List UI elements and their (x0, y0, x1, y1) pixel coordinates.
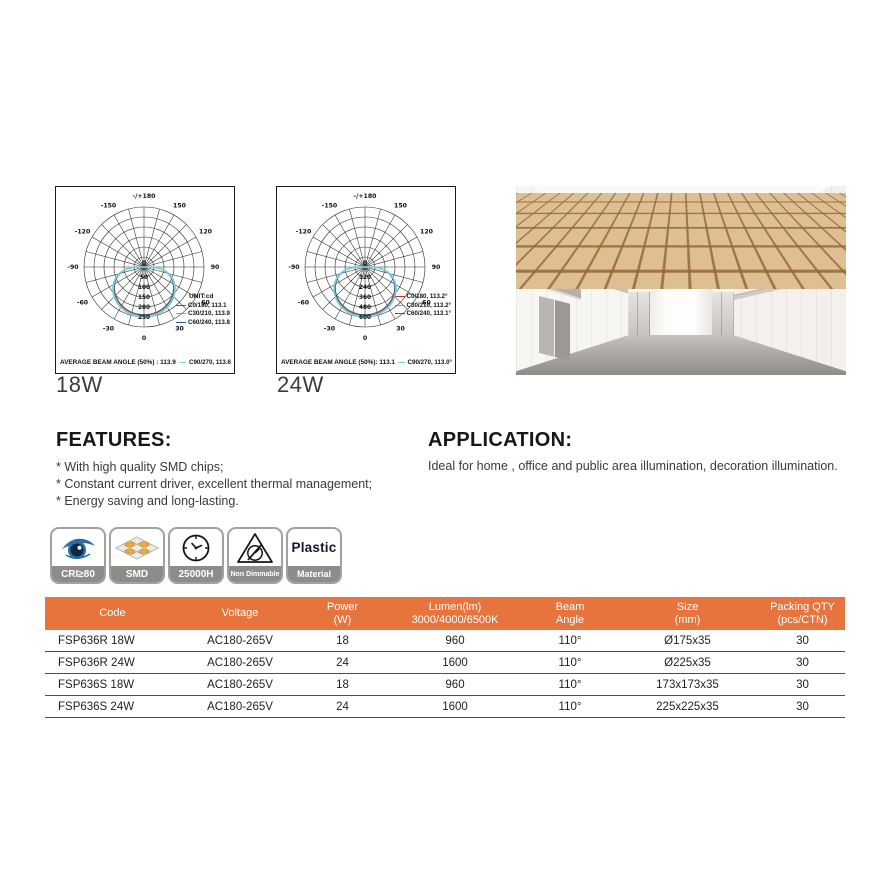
chart-legend: UNIT:cdC0/180, 113.1C30/210, 113.9C60/24… (176, 293, 230, 326)
table-cell: AC180-265V (180, 630, 300, 652)
table-cell: 30 (760, 674, 845, 696)
radial-tick-label: 240 (359, 285, 371, 291)
angle-tick-label: -90 (67, 264, 79, 271)
table-cell: 30 (760, 652, 845, 674)
angle-tick-label: 150 (394, 203, 408, 210)
radial-tick-label: 50 (140, 275, 148, 281)
table-cell: FSP636R 24W (45, 652, 180, 674)
table-cell: AC180-265V (180, 674, 300, 696)
center-label: 0 (363, 261, 367, 267)
average-beam-angle-row: AVERAGE BEAM ANGLE (50%) : 113.9C90/270,… (60, 359, 231, 366)
photo-center-column (650, 246, 712, 335)
radial-tick-label: 150 (138, 295, 150, 301)
badge-cri-label: CRI≥80 (52, 566, 104, 582)
angle-tick-label: -90 (288, 264, 300, 271)
table-cell: 173x173x35 (615, 674, 760, 696)
non-dimmable-icon (229, 530, 281, 565)
average-beam-angle-text: AVERAGE BEAM ANGLE (50%): 113.1 (281, 359, 395, 366)
angle-tick-label: -150 (101, 203, 117, 210)
photometric-chart-24w: -/+180-150150-120120-9090-6060-303001202… (276, 186, 456, 374)
radial-tick-label: 600 (359, 315, 371, 321)
table-cell: 110° (525, 696, 615, 718)
table-cell: FSP636R 18W (45, 630, 180, 652)
eye-icon (52, 530, 104, 565)
clock-icon (170, 530, 222, 565)
radial-tick-label: 480 (359, 305, 371, 311)
features-list: * With high quality SMD chips; * Constan… (56, 459, 372, 510)
chart-legend: C0/180, 113.2°C30/210, 113.2°C60/240, 11… (395, 293, 451, 317)
badge-material: Plastic Material (286, 527, 342, 584)
legend-label: C60/240, 113.8 (188, 319, 230, 326)
table-cell: 30 (760, 696, 845, 718)
col-header-size: Size(mm) (615, 597, 760, 630)
legend-swatch (176, 305, 186, 306)
table-cell: Ø225x35 (615, 652, 760, 674)
angle-tick-label: 30 (175, 325, 184, 332)
legend-entry: C0/180, 113.2° (395, 293, 451, 300)
badge-cri: CRI≥80 (50, 527, 106, 584)
features-title: FEATURES: (56, 429, 172, 452)
legend-label: C90/270, 113.6 (189, 359, 231, 366)
table-cell: 110° (525, 652, 615, 674)
badge-row: CRI≥80 SMD (50, 527, 342, 584)
angle-tick-label: 90 (432, 264, 441, 271)
table-cell: AC180-265V (180, 696, 300, 718)
legend-unit-label: UNIT:cd (189, 293, 230, 300)
table-cell: 1600 (385, 652, 525, 674)
table-cell: 225x225x35 (615, 696, 760, 718)
badge-lifetime-label: 25000H (170, 566, 222, 582)
angle-tick-label: 120 (199, 229, 213, 236)
application-title: APPLICATION: (428, 429, 572, 452)
table-row: FSP636R 18W AC180-265V 18 960 110° Ø175x… (45, 630, 845, 652)
legend-swatch (395, 313, 405, 314)
table-cell: 18 (300, 630, 385, 652)
table-cell: 24 (300, 696, 385, 718)
col-header-packing: Packing QTY(pcs/CTN) (760, 597, 845, 630)
badge-smd-label: SMD (111, 566, 163, 582)
photo-left-balcony (531, 205, 581, 300)
legend-label: C60/240, 113.1° (407, 310, 451, 317)
legend-label: C0/180, 113.2° (407, 293, 448, 300)
polar-diagram: -/+180-150150-120120-9090-6060-303005010… (56, 187, 232, 371)
table-row: FSP636R 24W AC180-265V 24 1600 110° Ø225… (45, 652, 845, 674)
polar-diagram: -/+180-150150-120120-9090-6060-303001202… (277, 187, 453, 371)
table-cell: FSP636S 24W (45, 696, 180, 718)
legend-swatch (398, 362, 405, 363)
angle-tick-label: -/+180 (133, 193, 157, 200)
legend-entry: C60/240, 113.1° (395, 310, 451, 317)
table-cell: 960 (385, 630, 525, 652)
legend-entry: C0/180, 113.1 (176, 302, 230, 309)
col-header-lumen: Lumen(lm)3000/4000/6500K (385, 597, 525, 630)
feature-item: * With high quality SMD chips; (56, 459, 372, 476)
chart-label-24w: 24W (277, 372, 324, 398)
angle-tick-label: 30 (396, 325, 405, 332)
datasheet-page: -/+180-150150-120120-9090-6060-303005010… (0, 0, 886, 886)
angle-tick-label: -30 (324, 325, 336, 332)
table-row: FSP636S 18W AC180-265V 18 960 110° 173x1… (45, 674, 845, 696)
radial-tick-label: 250 (138, 315, 150, 321)
average-beam-angle-text: AVERAGE BEAM ANGLE (50%) : 113.9 (60, 359, 176, 366)
photo-top-strip (516, 186, 846, 194)
smd-chip-icon (111, 530, 163, 565)
badge-lifetime: 25000H (168, 527, 224, 584)
feature-item: * Energy saving and long-lasting. (56, 493, 372, 510)
table-header-row: Code Voltage Power(W) Lumen(lm)3000/4000… (45, 597, 845, 630)
col-header-voltage: Voltage (180, 597, 300, 630)
badge-non-dimmable: Non Dimmable (227, 527, 283, 584)
angle-tick-label: -60 (298, 300, 310, 307)
badge-smd: SMD (109, 527, 165, 584)
table-row: FSP636S 24W AC180-265V 24 1600 110° 225x… (45, 696, 845, 718)
plastic-text: Plastic (292, 540, 337, 555)
angle-tick-label: 0 (142, 335, 147, 342)
table-cell: 1600 (385, 696, 525, 718)
photo-elevator-doors (539, 296, 570, 361)
table-cell: 960 (385, 674, 525, 696)
legend-label: C30/210, 113.9 (188, 310, 230, 317)
legend-entry: C30/210, 113.9 (176, 310, 230, 317)
legend-swatch (395, 305, 405, 306)
legend-swatch (179, 362, 186, 363)
table-cell: Ø175x35 (615, 630, 760, 652)
badge-non-dimmable-label: Non Dimmable (229, 566, 281, 582)
chart-label-18w: 18W (56, 372, 103, 398)
spec-table: Code Voltage Power(W) Lumen(lm)3000/4000… (45, 597, 845, 718)
average-beam-angle-row: AVERAGE BEAM ANGLE (50%): 113.1C90/270, … (281, 359, 452, 366)
table-cell: 18 (300, 674, 385, 696)
legend-label: C90/270, 113.0° (408, 359, 452, 366)
application-photo (516, 186, 846, 375)
col-header-code: Code (45, 597, 180, 630)
badge-material-label: Material (288, 566, 340, 582)
table-cell: 24 (300, 652, 385, 674)
angle-tick-label: 90 (211, 264, 220, 271)
table-cell: FSP636S 18W (45, 674, 180, 696)
center-label: 0 (142, 261, 146, 267)
radial-tick-label: 360 (359, 295, 371, 301)
angle-tick-label: -/+180 (354, 193, 378, 200)
legend-entry: C30/210, 113.2° (395, 302, 451, 309)
angle-tick-label: -150 (322, 203, 338, 210)
angle-tick-label: -60 (77, 300, 89, 307)
angle-tick-label: 0 (363, 335, 368, 342)
radial-tick-label: 200 (138, 305, 150, 311)
legend-entry: C60/240, 113.8 (176, 319, 230, 326)
angle-tick-label: -30 (103, 325, 115, 332)
angle-tick-label: 120 (420, 229, 434, 236)
legend-swatch (395, 296, 405, 297)
table-cell: AC180-265V (180, 652, 300, 674)
col-header-power: Power(W) (300, 597, 385, 630)
plastic-material-icon: Plastic (288, 530, 340, 565)
legend-label: C30/210, 113.2° (407, 302, 451, 309)
radial-tick-label: 100 (138, 285, 150, 291)
angle-tick-label: -120 (296, 229, 312, 236)
table-cell: 30 (760, 630, 845, 652)
table-cell: 110° (525, 630, 615, 652)
photometric-chart-18w: -/+180-150150-120120-9090-6060-303005010… (55, 186, 235, 374)
legend-label: C0/180, 113.1 (188, 302, 227, 309)
col-header-beam-angle: BeamAngle (525, 597, 615, 630)
table-cell: 110° (525, 674, 615, 696)
feature-item: * Constant current driver, excellent the… (56, 476, 372, 493)
angle-tick-label: -120 (75, 229, 91, 236)
angle-tick-label: 150 (173, 203, 187, 210)
application-text: Ideal for home , office and public area … (428, 458, 868, 475)
legend-swatch (176, 322, 186, 323)
legend-swatch (176, 313, 186, 314)
radial-tick-label: 120 (359, 275, 371, 281)
